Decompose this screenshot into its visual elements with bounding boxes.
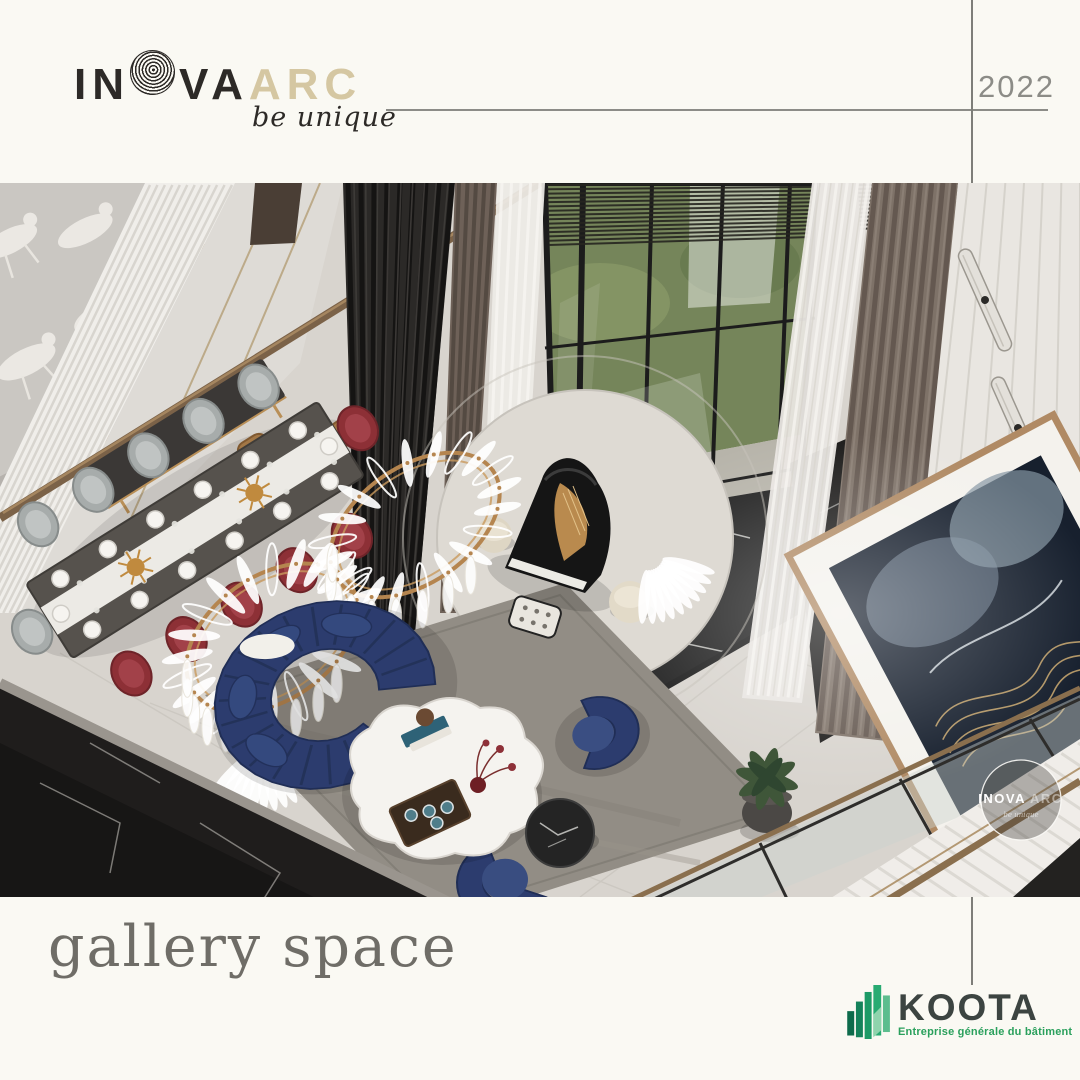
partner-logo: KOOTA Entreprise générale du bâtiment: [846, 985, 1072, 1039]
fingerprint-icon: [130, 50, 175, 95]
partner-name: KOOTA: [898, 990, 1072, 1025]
page-title: gallery space: [48, 914, 458, 980]
partner-tagline: Entreprise générale du bâtiment: [898, 1026, 1072, 1038]
wall-recess: [250, 183, 302, 245]
divider-vertical-top: [971, 0, 973, 183]
koota-house-icon: [846, 985, 892, 1039]
poster-canvas: INVAARC be unique 2022: [0, 0, 1080, 1080]
watermark-suffix: ARC: [1030, 791, 1063, 806]
gallery-photo: INOVA ARC be unique: [0, 183, 1080, 897]
watermark-name: INOVA: [978, 791, 1026, 806]
brand-word-va: VA: [179, 60, 249, 109]
coffee-table: [342, 698, 543, 865]
year-label: 2022: [978, 69, 1048, 105]
brand-tagline: be unique: [252, 102, 397, 133]
brand-logo: INVAARC: [74, 50, 362, 110]
divider-horizontal: [386, 109, 1048, 111]
divider-vertical-bottom: [971, 897, 973, 985]
watermark-tagline: be unique: [1003, 811, 1038, 819]
brand-word-in: IN: [74, 60, 130, 109]
